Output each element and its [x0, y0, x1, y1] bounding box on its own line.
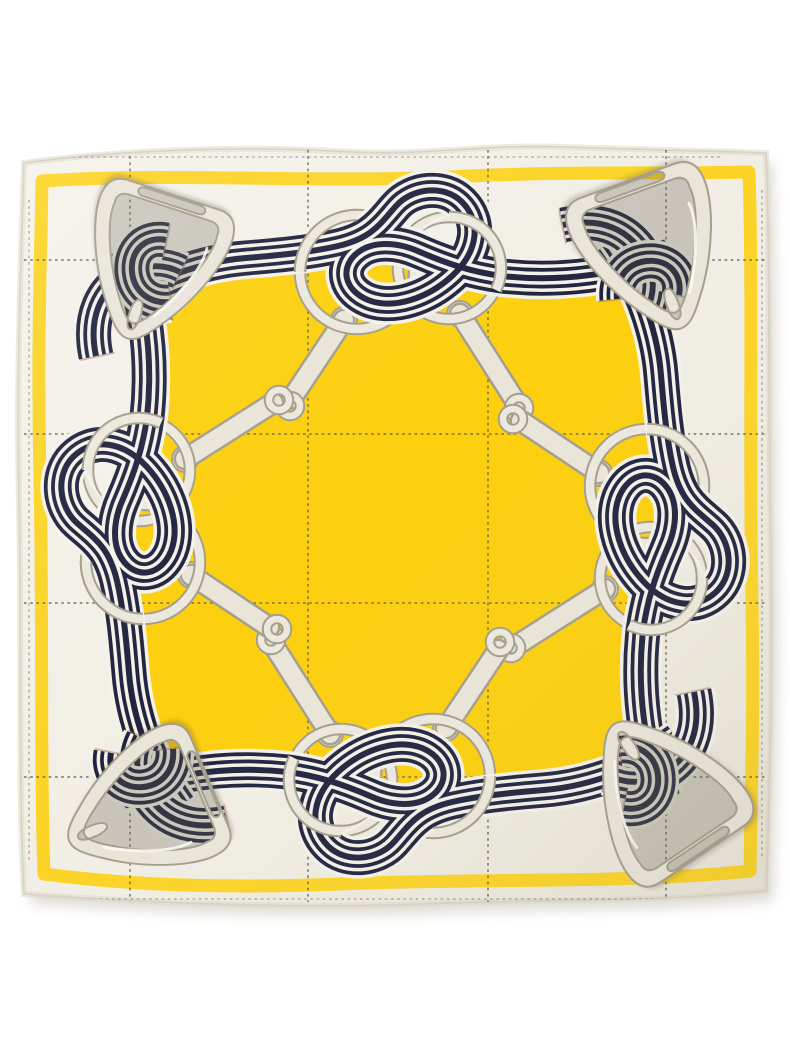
fabric-sheen: [18, 147, 771, 906]
scarf-photo-illustration: [0, 0, 790, 1053]
scarf-print: [18, 147, 771, 906]
product-photo: [0, 0, 790, 1053]
